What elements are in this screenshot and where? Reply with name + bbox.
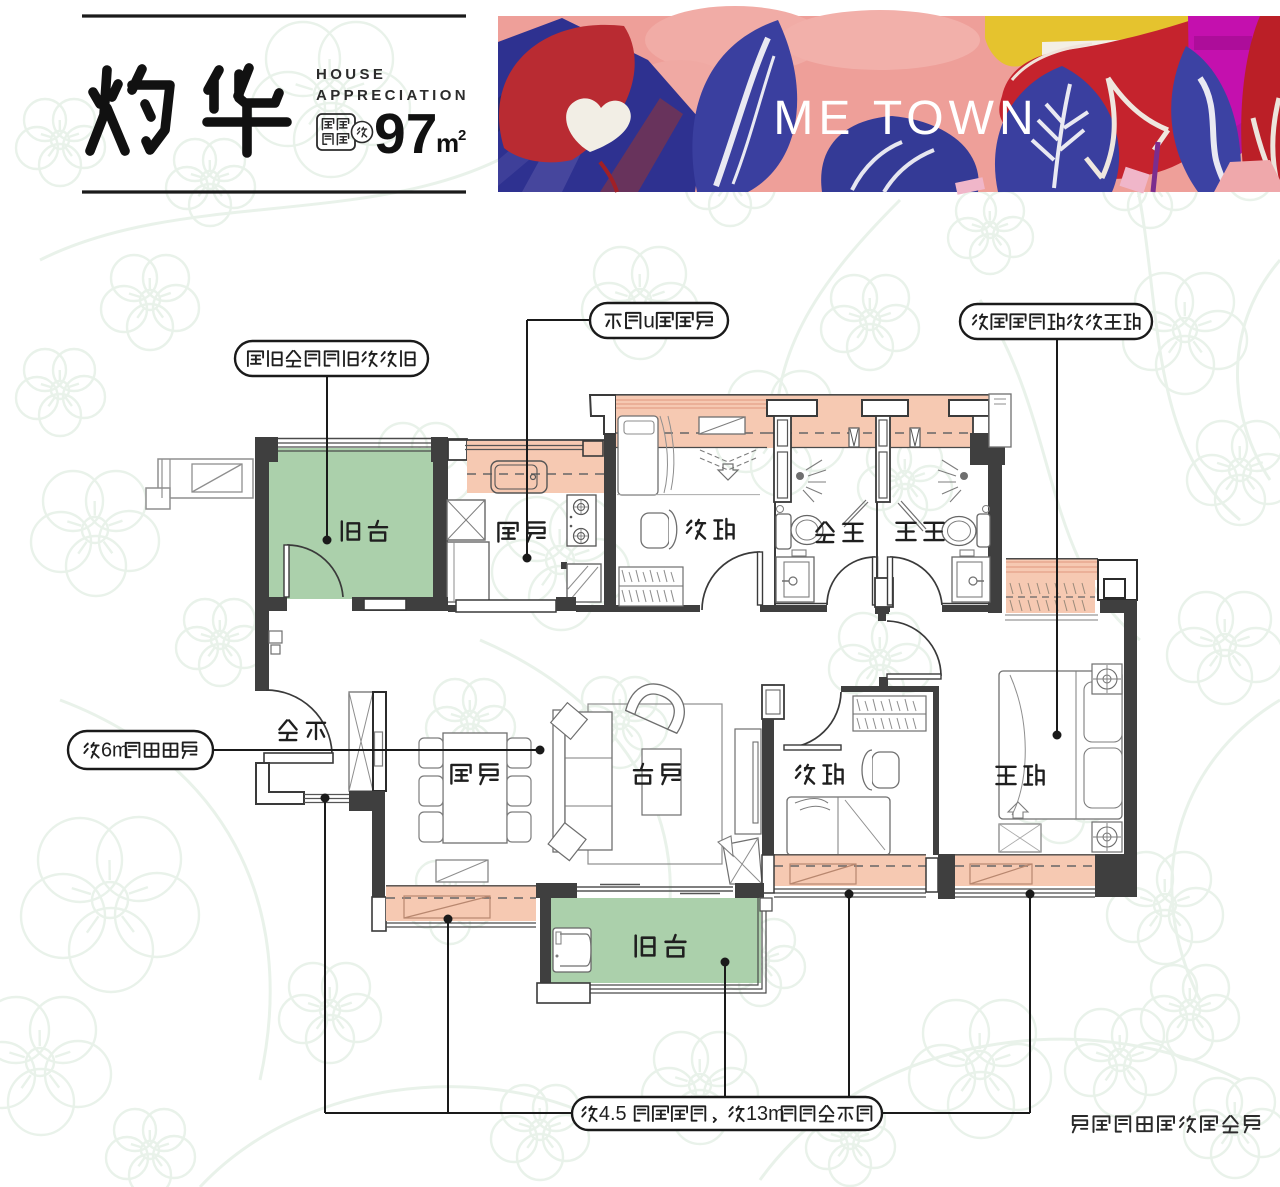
svg-text:13m: 13m [746,1103,785,1125]
svg-text:m: m [436,128,459,158]
svg-text:HOUSE: HOUSE [316,66,386,83]
svg-text:97: 97 [374,102,437,166]
svg-text:6m: 6m [101,740,129,762]
svg-text:u: u [643,309,655,332]
svg-text:4.5: 4.5 [599,1103,627,1125]
svg-text:ME TOWN: ME TOWN [773,92,1038,145]
svg-text:2: 2 [458,127,466,144]
